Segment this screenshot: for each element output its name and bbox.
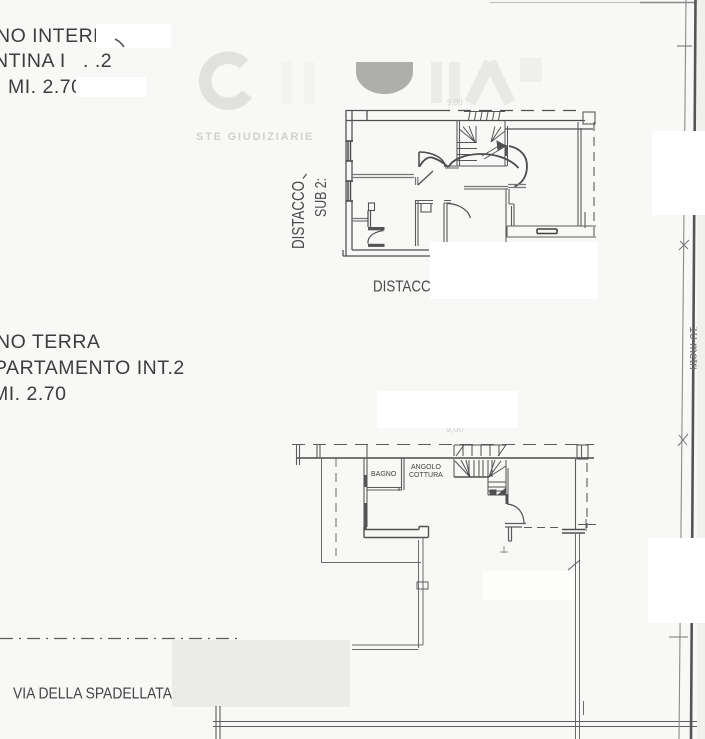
svg-text:NO INTERR: NO INTERR	[0, 25, 108, 47]
svg-text:DISTACCO: DISTACCO	[288, 181, 308, 249]
svg-text:MI. 2.70: MI. 2.70	[8, 76, 82, 98]
svg-text:NO TERRA: NO TERRA	[0, 331, 100, 353]
svg-text:VIA DELLA SPADELLATA: VIA DELLA SPADELLATA	[13, 686, 172, 703]
svg-text:NTINA I: NTINA I	[0, 50, 66, 72]
svg-text:MI. 2.70: MI. 2.70	[0, 383, 66, 405]
svg-text:BAGNO: BAGNO	[371, 471, 397, 478]
svg-text:PARTAMENTO INT.2: PARTAMENTO INT.2	[0, 357, 185, 379]
svg-text:ANGOLO: ANGOLO	[411, 464, 442, 471]
svg-text:COTTURA: COTTURA	[409, 472, 443, 479]
svg-text:STE GIUDIZIARIE: STE GIUDIZIARIE	[196, 131, 314, 143]
svg-text:9,00: 9,00	[447, 98, 463, 107]
svg-text:. .2: . .2	[83, 50, 112, 72]
svg-text:SUB 2:: SUB 2:	[313, 178, 330, 217]
